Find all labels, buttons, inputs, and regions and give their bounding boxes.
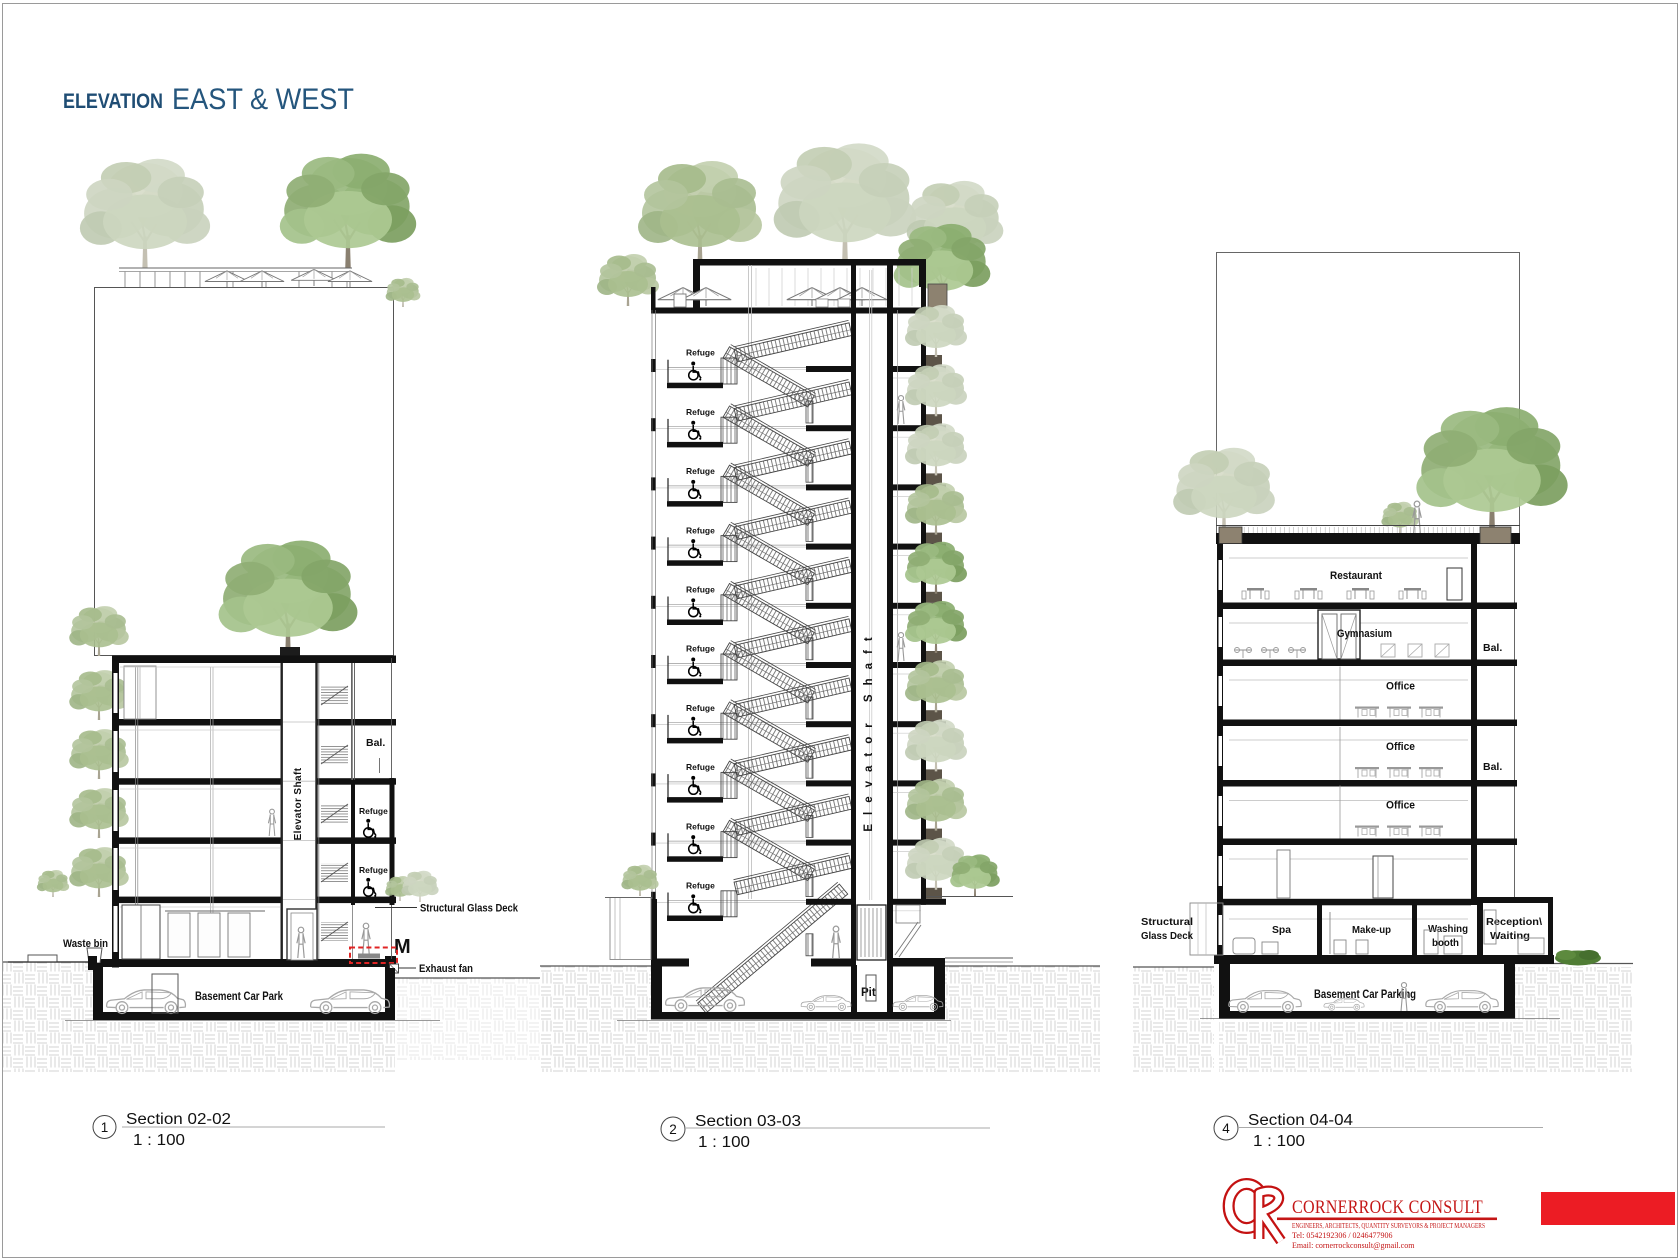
svg-text:Refuge: Refuge [686, 585, 715, 595]
svg-text:Section 03-03: Section 03-03 [695, 1113, 801, 1130]
svg-text:Make-up: Make-up [1352, 924, 1391, 936]
svg-text:Spa: Spa [1272, 924, 1291, 936]
svg-text:Section 04-04: Section 04-04 [1248, 1112, 1353, 1129]
svg-text:Refuge: Refuge [686, 348, 715, 358]
svg-text:Refuge: Refuge [359, 865, 388, 875]
svg-text:Bal.: Bal. [1483, 642, 1502, 654]
svg-text:Refuge: Refuge [686, 644, 715, 654]
svg-text:Restaurant: Restaurant [1330, 570, 1382, 582]
svg-text:Email: cornerrockconsult@gmail: Email: cornerrockconsult@gmail.com [1292, 1241, 1415, 1250]
svg-text:Office: Office [1386, 681, 1415, 693]
svg-text:Exhaust fan: Exhaust fan [419, 963, 473, 975]
svg-text:CORNERROCK CONSULT: CORNERROCK CONSULT [1292, 1198, 1483, 1218]
svg-text:booth: booth [1432, 937, 1459, 949]
svg-text:Structural Glass Deck: Structural Glass Deck [420, 903, 519, 915]
svg-text:Tel: 0542192306 / 0246477906: Tel: 0542192306 / 0246477906 [1292, 1231, 1393, 1240]
svg-text:Refuge: Refuge [686, 881, 715, 891]
svg-text:ENGINEERS, ARCHITECTS, QUANTIT: ENGINEERS, ARCHITECTS, QUANTITY SURVEYOR… [1292, 1221, 1485, 1230]
svg-text:Section 02-02: Section 02-02 [126, 1111, 231, 1128]
svg-text:ELEVATION: ELEVATION [63, 89, 163, 113]
svg-text:Office: Office [1386, 800, 1415, 812]
svg-text:Refuge: Refuge [686, 466, 715, 476]
svg-text:EAST & WEST: EAST & WEST [172, 83, 354, 116]
svg-text:1: 1 [101, 1120, 109, 1135]
svg-text:Glass Deck: Glass Deck [1141, 930, 1193, 942]
svg-text:Pit: Pit [861, 987, 876, 999]
svg-text:Washing: Washing [1428, 923, 1468, 935]
svg-text:Elevator Shaft: Elevator Shaft [863, 628, 875, 831]
svg-text:Refuge: Refuge [686, 525, 715, 535]
svg-text:4: 4 [1222, 1121, 1230, 1136]
svg-text:1 : 100: 1 : 100 [1253, 1133, 1305, 1150]
svg-text:Refuge: Refuge [359, 806, 388, 816]
svg-text:Refuge: Refuge [686, 762, 715, 772]
svg-text:Refuge: Refuge [686, 703, 715, 713]
svg-text:Refuge: Refuge [686, 821, 715, 831]
svg-text:Refuge: Refuge [686, 407, 715, 417]
svg-text:Office: Office [1386, 741, 1415, 753]
svg-text:Gymnasium: Gymnasium [1337, 628, 1392, 640]
svg-text:1 : 100: 1 : 100 [698, 1134, 750, 1151]
svg-text:Elevator Shaft: Elevator Shaft [293, 767, 304, 840]
svg-text:2: 2 [669, 1122, 677, 1137]
svg-text:1 : 100: 1 : 100 [133, 1132, 185, 1149]
svg-text:Basement Car Park: Basement Car Park [195, 989, 283, 1003]
svg-text:Reception\: Reception\ [1486, 916, 1542, 928]
svg-text:Structural: Structural [1141, 916, 1193, 928]
svg-text:Bal.: Bal. [366, 737, 385, 749]
svg-text:Bal.: Bal. [1483, 761, 1502, 773]
